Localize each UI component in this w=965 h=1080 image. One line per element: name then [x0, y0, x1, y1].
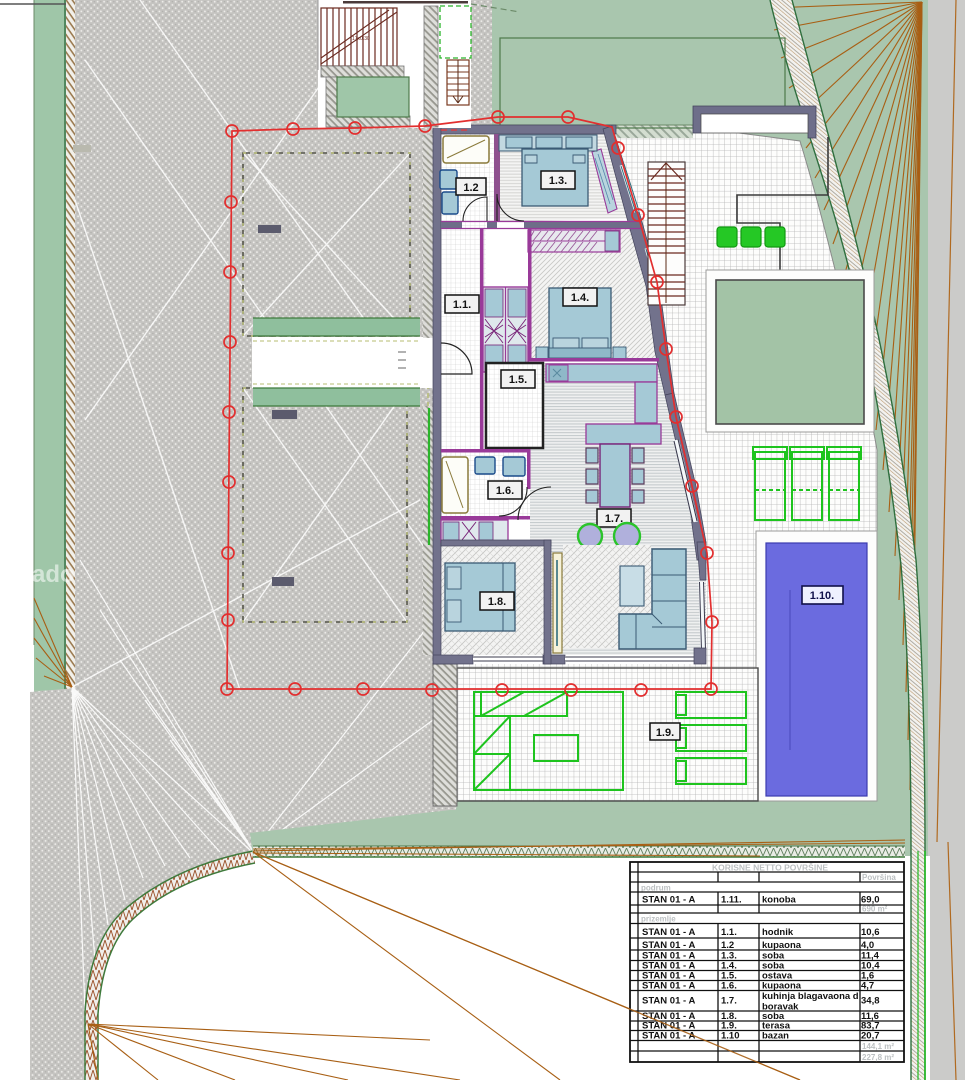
- svg-text:prizemlje: prizemlje: [641, 915, 676, 924]
- svg-text:1.4.: 1.4.: [571, 292, 589, 304]
- svg-text:1.2: 1.2: [463, 182, 478, 194]
- svg-text:grado: grado: [8, 561, 75, 588]
- svg-text:1.5.: 1.5.: [509, 374, 527, 386]
- svg-text:kuhinja blagavaona d: kuhinja blagavaona d: [762, 991, 859, 1002]
- svg-text:1.1.: 1.1.: [721, 927, 737, 938]
- svg-text:1.7.: 1.7.: [721, 996, 737, 1007]
- svg-text:1.7.: 1.7.: [605, 513, 623, 525]
- svg-text:17x0.30: 17x0.30: [352, 36, 370, 42]
- svg-text:1.1.: 1.1.: [453, 299, 471, 311]
- svg-text:1.3.: 1.3.: [549, 175, 567, 187]
- svg-text:1.11.: 1.11.: [721, 895, 742, 906]
- svg-text:144,1 m²: 144,1 m²: [862, 1042, 894, 1051]
- svg-text:STAN 01 - A: STAN 01 - A: [642, 895, 695, 906]
- svg-text:KORISNE NETTO POVRŠINE: KORISNE NETTO POVRŠINE: [712, 862, 828, 873]
- svg-text:STAN 01 - A: STAN 01 - A: [642, 927, 695, 938]
- svg-text:konoba: konoba: [762, 895, 796, 906]
- svg-text:1.10.: 1.10.: [810, 590, 834, 602]
- svg-text:podrum: podrum: [641, 884, 671, 893]
- svg-text:690 m²: 690 m²: [862, 905, 888, 914]
- svg-text:hodnik: hodnik: [762, 927, 794, 938]
- svg-text:227,8 m²: 227,8 m²: [862, 1053, 894, 1062]
- svg-text:Površina: Površina: [862, 873, 896, 882]
- svg-text:STAN 01 - A: STAN 01 - A: [642, 996, 695, 1007]
- svg-text:1.9.: 1.9.: [656, 727, 674, 739]
- svg-text:1.6.: 1.6.: [496, 485, 514, 497]
- svg-text:34,8: 34,8: [861, 996, 880, 1007]
- svg-text:10,6: 10,6: [861, 927, 880, 938]
- svg-text:1.8.: 1.8.: [488, 596, 506, 608]
